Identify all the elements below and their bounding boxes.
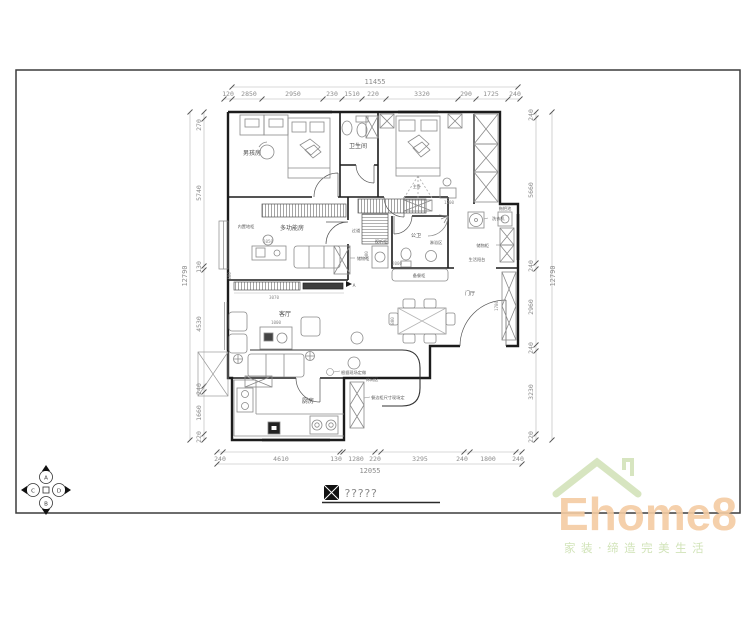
dim-tv-wall-depth: 400 <box>227 272 232 280</box>
washing-machine-icon <box>470 214 483 227</box>
label-boy-room: 男孩房 <box>243 149 261 157</box>
tv-wall-cabinet <box>234 282 300 290</box>
ac-platform <box>198 352 228 396</box>
sheet-title: ????? <box>344 487 377 500</box>
balcony-fixtures <box>468 212 514 262</box>
walls <box>228 112 518 440</box>
label-bathroom: 卫生间 <box>349 142 367 150</box>
dim-coffee-table: 1000 <box>271 320 282 325</box>
dim-right-seg: 3230 <box>527 384 535 400</box>
av-cabinet-icon <box>372 246 388 268</box>
label-washing-machine: 洗衣机 <box>492 215 505 222</box>
dim-top-seg: 240 <box>509 90 521 98</box>
title-block: ????? <box>322 485 440 503</box>
bookshelf <box>262 204 346 217</box>
brand-logo: Ehome8 家装·缔造完美生活 <box>556 460 737 555</box>
label-built-in-cabinet: 内置地柜 <box>238 223 255 230</box>
dim-bottom-seg: 240 <box>214 455 226 463</box>
bed-icon <box>396 116 440 176</box>
dim-top-seg: 3320 <box>414 90 430 98</box>
dim-top-seg: 1510 <box>344 90 360 98</box>
dim-bottom-seg: 1800 <box>480 455 496 463</box>
compass-letter-a: A <box>44 476 48 482</box>
dim-bottom-seg: 130 <box>330 455 342 463</box>
annotation-site-note: 根据现场定做 <box>341 369 367 376</box>
dim-left-seg: 4530 <box>195 316 203 332</box>
dim-top-seg: 120 <box>222 90 234 98</box>
dim-top-seg: 2950 <box>285 90 301 98</box>
dim-right-seg: 2960 <box>527 299 535 315</box>
compass-icon: A B C D <box>21 465 71 515</box>
dim-master-tv: 1200 <box>444 200 455 205</box>
toilet-icon <box>401 248 411 260</box>
dim-left-seg: 1660 <box>195 405 203 421</box>
armchair-icon <box>229 334 247 353</box>
dim-left-seg: 240 <box>195 383 203 395</box>
dim-top-seg: 220 <box>367 90 379 98</box>
dining-furniture <box>389 299 455 343</box>
guest-bath-fixtures <box>392 215 448 281</box>
chair-icon <box>260 145 274 159</box>
dim-left-seg: 270 <box>195 119 203 131</box>
sink-icon <box>342 121 352 135</box>
dim-right-seg: 240 <box>527 260 535 272</box>
compass-letter-d: D <box>57 489 61 495</box>
annotation-cabinet-note: 餐边柜尺寸现场定 <box>371 394 405 401</box>
stove-icon <box>310 416 338 434</box>
dim-top-seg: 1725 <box>483 90 499 98</box>
label-leisure-area: 休闲区 <box>366 376 379 383</box>
foyer-furniture <box>502 272 516 340</box>
armchair-icon <box>229 312 247 331</box>
daybed-icon <box>294 246 340 268</box>
dim-bottom-seg: 1280 <box>348 455 364 463</box>
dim-bottom-seg: 3295 <box>412 455 428 463</box>
toilet-icon <box>357 123 367 137</box>
logo-tagline: 家装·缔造完美生活 <box>564 541 709 555</box>
elevation-marker: A <box>346 281 356 288</box>
shower-icon <box>428 215 448 236</box>
dim-right-total: 12790 <box>549 265 557 286</box>
compass-letter-b: B <box>44 502 48 508</box>
dim-tv-wall: 3070 <box>269 295 280 300</box>
kitchen-sink-icon <box>237 388 253 412</box>
elevation-marker-letter: A <box>353 283 356 288</box>
bathroom-fixtures <box>342 116 378 138</box>
boy-room-furniture <box>240 115 330 178</box>
dim-right-seg: 240 <box>527 342 535 354</box>
label-master-bedroom: 主卧 <box>413 183 421 190</box>
label-shower-area: 淋浴区 <box>430 239 443 246</box>
sofa-icon <box>248 354 304 377</box>
dim-right-seg: 220 <box>527 431 535 443</box>
kitchen-fixtures <box>234 380 344 436</box>
dim-right-seg: 240 <box>527 109 535 121</box>
tv-set <box>303 283 343 289</box>
logo-chimney-icon <box>624 460 632 476</box>
label-mop-pool: 拖把池 <box>499 205 512 212</box>
label-guest-bathroom: 公卫 <box>411 233 421 239</box>
entry-door-arc <box>460 300 506 346</box>
compass-letter-c: C <box>31 489 35 495</box>
dim-dining-table: 800 <box>390 317 395 325</box>
dim-shoe-cabinet: 1780 <box>494 300 499 311</box>
floorplan-sheet: 11455 120 2850 2950 230 1510 220 3320 29… <box>0 0 756 630</box>
label-living-room: 客厅 <box>279 310 291 318</box>
dim-top-total: 11455 <box>364 78 385 86</box>
shoe-cabinet-icon <box>502 272 516 340</box>
sink-icon <box>426 251 437 262</box>
dim-left-seg: 220 <box>195 431 203 443</box>
dim-bottom-seg: 240 <box>456 455 468 463</box>
logo-brand-text: Ehome8 <box>558 488 737 540</box>
label-serving-cabinet: 备餐柜 <box>413 272 426 279</box>
label-service-balcony: 生活阳台 <box>469 256 486 263</box>
dim-left-seg: 130 <box>195 261 203 273</box>
dim-top-seg: 290 <box>460 90 472 98</box>
leisure-cabinet-icon <box>350 382 364 428</box>
dim-top-seg: 2850 <box>241 90 257 98</box>
label-hallway: 过道 <box>352 227 361 234</box>
dim-av-length: 2000 <box>392 261 403 266</box>
label-foyer: 门厅 <box>465 290 475 297</box>
dim-desk: 1050 <box>263 239 274 244</box>
dim-right-seg: 5660 <box>527 182 535 198</box>
floorplan-canvas: 11455 120 2850 2950 230 1510 220 3320 29… <box>0 0 756 630</box>
dim-bottom-seg: 220 <box>369 455 381 463</box>
dim-top-seg: 230 <box>326 90 338 98</box>
label-hall-storage: 储物柜 <box>357 255 370 262</box>
label-multi-function-room: 多功能房 <box>280 224 304 232</box>
room-labels: 男孩房 卫生间 主卧 多功能房 内置地柜 过道 储物柜 视听柜 公卫 淋浴区 洗… <box>238 142 512 405</box>
dim-bottom-seg: 240 <box>512 455 524 463</box>
label-kitchen: 厨房 <box>302 397 314 405</box>
dim-bottom-total: 12055 <box>359 467 380 475</box>
hatch-cabinets <box>234 199 426 290</box>
dim-bottom-seg: 4610 <box>273 455 289 463</box>
label-balcony-storage: 储物柜 <box>476 242 489 249</box>
dim-left-seg: 5740 <box>195 185 203 201</box>
armchair-icon <box>301 317 320 336</box>
dim-left-total: 12790 <box>181 265 189 286</box>
furniture <box>229 114 516 436</box>
label-av-cabinet: 视听柜 <box>375 238 388 245</box>
